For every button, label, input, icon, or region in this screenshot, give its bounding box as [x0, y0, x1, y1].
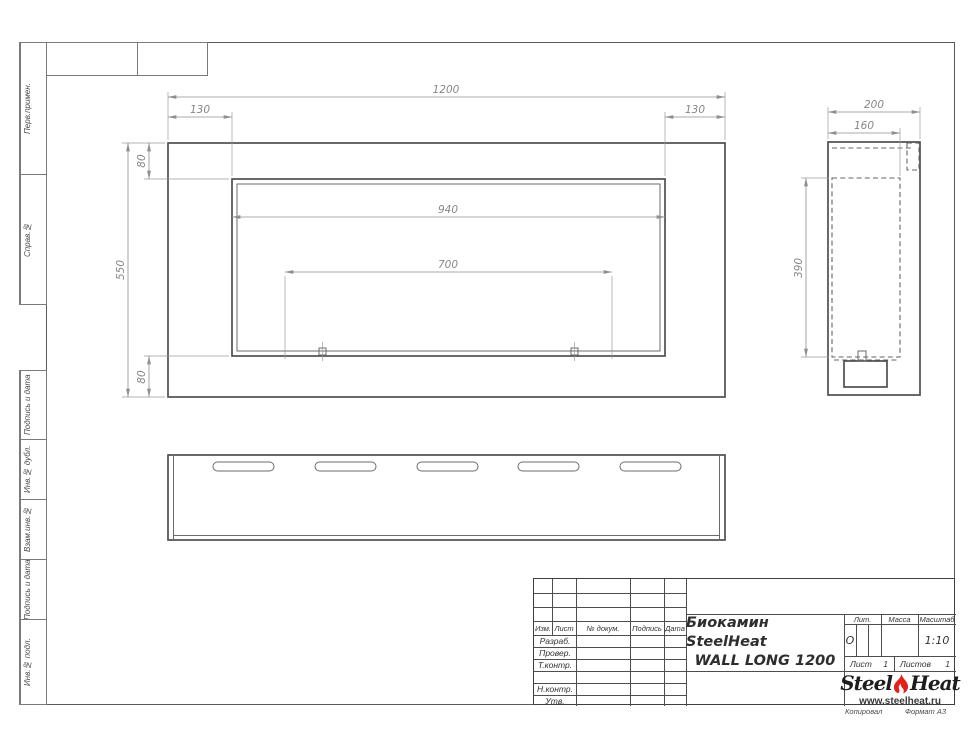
company-logo: Steel Heat www.steelheat.ru [844, 671, 956, 706]
dim-side-inner-depth: 160 [854, 120, 874, 132]
vent-slot [518, 462, 579, 471]
side-view: 200 160 390 [793, 99, 920, 395]
sheets-label: Листов [900, 659, 931, 669]
logo-text-heat: Heat [910, 671, 960, 695]
row-label-razrab: Разраб. [534, 635, 576, 647]
document-title-line1: Биокамин SteelHeat [686, 614, 844, 652]
vent-slot [213, 462, 274, 471]
copied-by-label: Копировал [845, 707, 882, 716]
col-header-podpis: Подпись [630, 621, 664, 635]
engineering-drawing-sheet: { "frame": { "vertical_labels": ["Перв.п… [0, 0, 970, 749]
sheet-number: 1 [883, 659, 888, 669]
sheet-label: Лист [850, 659, 872, 669]
flame-icon [893, 674, 909, 695]
row-label-tkontr: Т.контр. [534, 659, 576, 671]
row-label-nkontr: Н.контр. [534, 683, 576, 695]
format-label: Формат А3 [905, 707, 946, 716]
row-label-utv: Утв. [534, 695, 576, 706]
dim-front-opening-width: 940 [438, 204, 458, 216]
mass-header: Масса [881, 614, 918, 624]
title-block: Изм. Лист № докум. Подпись Дата Разраб. … [533, 578, 955, 705]
col-header-data: Дата [664, 621, 686, 635]
dim-front-height: 550 [115, 260, 127, 280]
dim-side-opening-height: 390 [793, 258, 805, 278]
dim-front-top-margin: 80 [136, 154, 148, 168]
logo-text-steel: Steel [840, 671, 892, 695]
sheet-cell: Лист 1 [844, 656, 894, 671]
dim-front-width: 1200 [433, 84, 460, 96]
dim-front-inset-left: 130 [190, 104, 210, 116]
logo-website: www.steelheat.ru [859, 696, 941, 707]
dim-front-bottom-margin: 80 [136, 370, 148, 384]
vent-slot [417, 462, 478, 471]
row-label-prover: Провер. [534, 647, 576, 659]
document-title: Биокамин SteelHeat WALL LONG 1200 [686, 614, 844, 671]
dim-front-inset-right: 130 [685, 104, 705, 116]
vent-slot [315, 462, 376, 471]
col-header-list: Лист [552, 621, 576, 635]
scale-value: 1:10 [918, 624, 956, 656]
dim-front-burner-span: 700 [438, 259, 458, 271]
scale-header: Масштаб [918, 614, 956, 624]
sheets-cell: Листов 1 [894, 656, 956, 671]
bottom-view [168, 455, 725, 540]
document-title-line2: WALL LONG 1200 [695, 652, 836, 671]
sheets-number: 1 [945, 659, 950, 669]
col-header-dokum: № докум. [576, 621, 630, 635]
dim-side-depth: 200 [864, 99, 884, 111]
lit-header: Лит. [844, 614, 881, 624]
front-view: 1200 130 130 940 700 550 80 80 [115, 84, 725, 397]
vent-slot [620, 462, 681, 471]
col-header-izm: Изм. [534, 621, 552, 635]
lit-value: О [844, 624, 856, 656]
